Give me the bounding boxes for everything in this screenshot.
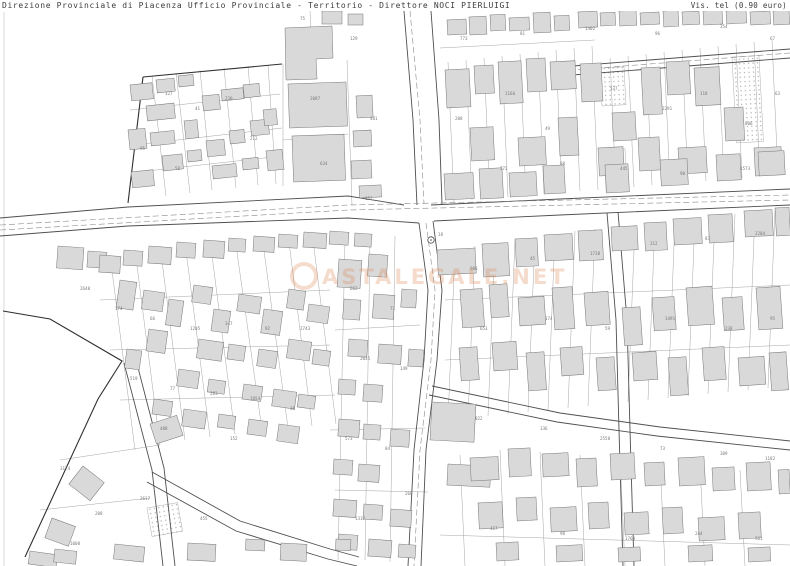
building [227, 344, 246, 361]
building [123, 250, 143, 266]
building [203, 240, 225, 258]
road-edge-line [434, 205, 790, 221]
parcel-number-label: 3174 [60, 466, 71, 471]
building [263, 109, 278, 126]
parcel-number-label: 309 [720, 451, 728, 456]
building [492, 341, 518, 371]
cadastral-map-page: Direzione Provinciale di Piacenza Uffici… [0, 0, 790, 566]
parcel-number-label: 1317 [355, 516, 366, 521]
building [516, 497, 537, 521]
building [611, 226, 638, 251]
building [498, 61, 523, 104]
parcel-number-label: 1182 [765, 456, 776, 461]
parcel-number-label: 2087 [310, 96, 321, 101]
junction-point-dot-icon [430, 239, 432, 241]
building [716, 154, 741, 181]
cadastral-map: 3274123095212582087634481152129757738114… [0, 0, 790, 566]
building [533, 12, 551, 33]
road-dashed-line [0, 200, 790, 230]
building [253, 236, 275, 252]
building [470, 457, 499, 481]
building [478, 502, 503, 529]
building [297, 394, 316, 409]
building [552, 287, 575, 330]
parcel-number-label: 773 [460, 36, 468, 41]
building [338, 419, 360, 437]
parcel-line [335, 490, 428, 492]
building [243, 83, 260, 98]
parcel-number-label: 653 [480, 326, 488, 331]
building [390, 429, 410, 447]
building [445, 69, 471, 108]
building [644, 222, 667, 251]
building [673, 218, 702, 245]
parcel-number-label: 481 [370, 116, 378, 121]
building [212, 163, 237, 178]
building [150, 130, 175, 145]
road-edge-line [404, 11, 417, 205]
building [724, 107, 745, 141]
parcel-number-label: 2640 [80, 286, 91, 291]
building [182, 409, 207, 429]
parcel-number-label: 58 [175, 166, 181, 171]
parcel-number-label: 49 [545, 126, 551, 131]
parcel-number-label: 2291 [662, 106, 673, 111]
building [460, 288, 485, 327]
building [358, 464, 380, 482]
parcel-number-label: 41 [195, 106, 201, 111]
building [580, 63, 603, 102]
parcel-number-label: 75 [300, 16, 306, 21]
watermark-logo-icon [292, 264, 316, 288]
parcel-number-label: 208 [455, 116, 463, 121]
building [141, 290, 164, 312]
building [775, 207, 790, 236]
building [54, 549, 77, 564]
building [769, 352, 789, 391]
building [398, 544, 416, 558]
building [666, 61, 691, 95]
parcel-number-label: 149 [400, 366, 408, 371]
building [343, 299, 361, 320]
parcel-number-label: 92 [265, 326, 271, 331]
building [746, 462, 771, 491]
building [130, 83, 154, 101]
building [280, 543, 307, 561]
parcel-number-label: 347 [225, 321, 233, 326]
building [698, 517, 725, 541]
parcel-number-label: 136 [540, 426, 548, 431]
building [363, 504, 383, 520]
parcel-number-label: 1205 [190, 326, 201, 331]
building [618, 547, 641, 562]
building [368, 539, 392, 558]
building [312, 349, 331, 366]
parcel-number-label: 2204 [755, 231, 766, 236]
building [596, 357, 616, 391]
parcel-number-label: 77 [170, 386, 176, 391]
parcel-line [200, 70, 212, 190]
building [28, 551, 58, 566]
building [678, 457, 705, 486]
parcel-number-label: 2743 [300, 326, 311, 331]
parcel-line [40, 498, 150, 510]
parcel-number-label: 174 [115, 306, 123, 311]
building [459, 347, 479, 381]
parcel-number-label: 573 [345, 436, 353, 441]
parcel-number-label: 18 [438, 232, 444, 237]
building [178, 74, 194, 87]
building [515, 238, 538, 267]
building [526, 58, 547, 92]
building [165, 299, 183, 327]
building [738, 512, 761, 539]
parcel-number-label: 1573 [740, 166, 751, 171]
parcel-number-label: 90 [680, 171, 686, 176]
building [703, 10, 723, 25]
parcel-number-label: 537 [610, 86, 618, 91]
parcel-number-label: 84 [385, 446, 391, 451]
building [363, 424, 381, 440]
building [588, 502, 609, 529]
building [542, 453, 569, 477]
building [638, 137, 661, 171]
road-edge-line [429, 395, 790, 450]
building [348, 339, 368, 357]
building [748, 547, 771, 562]
header-title: Direzione Provinciale di Piacenza Uffici… [2, 1, 510, 10]
building [576, 458, 597, 487]
parcel-number-label: 96 [655, 31, 661, 36]
parcel-number-label: 87 [705, 236, 711, 241]
building [99, 255, 121, 273]
building [162, 154, 183, 171]
building [686, 286, 715, 326]
building [176, 242, 196, 258]
building [229, 129, 245, 143]
building [550, 507, 577, 532]
building [550, 61, 576, 90]
building [430, 402, 476, 442]
building [356, 95, 373, 118]
building [177, 369, 200, 389]
parcel-number-label: 174 [545, 316, 553, 321]
parcel-line [440, 40, 595, 48]
building [600, 12, 616, 26]
building [518, 296, 546, 326]
parcel-number-label: 634 [320, 161, 328, 166]
building [307, 304, 330, 324]
parcel-number-label: 354 [720, 24, 728, 29]
parcel-number-label: 88 [560, 161, 566, 166]
parcel-number-label: 2035 [360, 356, 371, 361]
building [303, 232, 327, 249]
building [470, 127, 495, 161]
building [131, 170, 155, 188]
building [610, 453, 635, 480]
building [329, 231, 349, 245]
building [148, 246, 172, 265]
parcel-number-label: 1402 [585, 26, 596, 31]
parcel-number-label: 208 [95, 511, 103, 516]
building [206, 139, 226, 157]
parcel-number-label: 445 [620, 166, 628, 171]
parcel-number-label: 67 [770, 36, 776, 41]
parcel-number-label: 455 [200, 516, 208, 521]
parcel-number-label: 71 [390, 306, 396, 311]
watermark: ASTALEGALE.NET [292, 264, 568, 289]
building [56, 246, 83, 270]
building [644, 462, 665, 486]
building [702, 346, 726, 380]
building [526, 352, 547, 391]
parcel-line [210, 240, 235, 434]
parcel-number-label: 806 [745, 121, 753, 126]
parcel-number-label: 81 [520, 31, 526, 36]
building [277, 424, 300, 444]
building [401, 289, 417, 308]
parcel-line [335, 325, 420, 330]
parcel-number-label: 272 [500, 166, 508, 171]
building [285, 26, 333, 80]
building [202, 94, 220, 111]
parcel-number-label: 98 [560, 531, 566, 536]
parcel-number-label: 2617 [140, 496, 151, 501]
building [622, 307, 643, 346]
building [245, 539, 265, 551]
building [113, 544, 144, 562]
building [612, 112, 636, 141]
building [708, 214, 733, 243]
parcel-number-label: 152 [230, 436, 238, 441]
parcel-line [440, 535, 790, 545]
parcel-number-label: 1008 [70, 541, 81, 546]
building [509, 172, 537, 197]
building [292, 134, 346, 182]
road-edge-line [432, 386, 790, 441]
building [363, 384, 383, 402]
building [726, 10, 747, 24]
building [338, 379, 356, 395]
watermark-text: ASTALEGALE.NET [322, 265, 568, 289]
building [750, 11, 771, 25]
header-bar: Direzione Provinciale di Piacenza Uffici… [0, 0, 790, 11]
building [632, 351, 658, 381]
parcel-number-label: 66 [150, 316, 156, 321]
building [556, 545, 583, 562]
building [237, 294, 262, 314]
building [738, 356, 766, 386]
parcel-number-label: 118 [700, 91, 708, 96]
road-edge-line [431, 11, 442, 204]
building [496, 542, 519, 561]
parcel-line [60, 445, 160, 460]
road-edge-line [0, 196, 404, 218]
parcel-number-label: 1166 [505, 91, 516, 96]
building [242, 157, 259, 170]
building [152, 399, 173, 416]
building [196, 339, 223, 361]
building [217, 414, 236, 429]
building [543, 165, 565, 194]
building [652, 296, 676, 330]
building [544, 234, 573, 261]
building [351, 160, 372, 179]
building [554, 15, 570, 31]
building [490, 14, 506, 31]
building [641, 67, 662, 115]
parcel-number-label: 152 [365, 196, 373, 201]
building [192, 285, 213, 304]
building [518, 137, 546, 166]
parcel-number-label: 268 [405, 491, 413, 496]
building [509, 17, 530, 31]
building [390, 509, 412, 527]
parcel-line [347, 60, 352, 205]
parcel-number-label: 36 [290, 406, 296, 411]
building [479, 168, 504, 199]
building [682, 11, 700, 25]
orchard-stipple-area [147, 503, 183, 537]
building [447, 19, 467, 35]
building [758, 151, 785, 176]
building [261, 309, 283, 335]
building [187, 150, 202, 162]
parcel-number-label: 212 [250, 136, 258, 141]
building [756, 286, 783, 330]
building [668, 357, 689, 396]
building [663, 10, 679, 27]
building [146, 329, 168, 353]
building [228, 238, 246, 252]
building [584, 291, 610, 326]
building [778, 469, 790, 494]
building [247, 419, 268, 436]
building [278, 234, 298, 248]
building [469, 16, 487, 35]
building [560, 346, 584, 375]
parcel-number-label: 95 [770, 316, 776, 321]
building [124, 349, 141, 370]
parcel-number-label: 488 [160, 426, 168, 431]
building [694, 67, 721, 106]
parcel-number-label: 561 [755, 536, 763, 541]
building [353, 130, 372, 147]
building [474, 65, 494, 94]
building [348, 14, 363, 25]
parcel-number-label: 1763 [625, 536, 636, 541]
building [257, 349, 278, 368]
parcel-number-label: 2558 [600, 436, 611, 441]
parcel-number-label: 1738 [590, 251, 601, 256]
building [558, 117, 579, 156]
building [640, 12, 660, 25]
building [322, 11, 342, 24]
building [378, 344, 402, 365]
building [662, 507, 683, 534]
parcel-number-label: 95 [140, 146, 146, 151]
building [444, 172, 474, 199]
parcel-number-label: 238 [725, 326, 733, 331]
building [688, 545, 713, 562]
building [408, 349, 424, 367]
parcel-number-label: 59 [605, 326, 611, 331]
building [184, 120, 199, 139]
parcel-number-label: 327 [165, 91, 173, 96]
parcel-number-label: 244 [695, 531, 703, 536]
building [335, 539, 351, 551]
parcel-number-label: 283 [210, 391, 218, 396]
parcel-number-label: 230 [225, 96, 233, 101]
building [288, 82, 348, 128]
parcel-number-label: 519 [130, 376, 138, 381]
building [624, 512, 649, 535]
boundary-line [143, 64, 282, 77]
building [578, 230, 604, 261]
parcel-number-label: 1054 [250, 396, 261, 401]
parcel-number-label: 417 [490, 526, 498, 531]
building [333, 499, 357, 518]
building [773, 10, 790, 25]
building [146, 103, 175, 121]
building [508, 448, 531, 477]
building [619, 10, 637, 26]
building [712, 467, 735, 491]
boundary-line [3, 311, 122, 557]
parcel-number-label: 1491 [665, 316, 676, 321]
parcel-number-label: 73 [660, 446, 666, 451]
map-symbols-layer [428, 237, 434, 243]
building [286, 289, 305, 310]
building [266, 149, 284, 171]
building [354, 233, 372, 247]
building [69, 466, 104, 501]
parcel-number-label: 63 [775, 91, 781, 96]
building [333, 459, 353, 475]
parcel-number-label: 129 [350, 36, 358, 41]
building [187, 543, 216, 561]
parcel-number-label: 45 [530, 256, 536, 261]
parcel-number-label: 822 [475, 416, 483, 421]
header-visura-fee-note: Vis. tel (0.90 euro) [691, 1, 787, 10]
parcel-number-label: 312 [650, 241, 658, 246]
building [286, 339, 311, 361]
